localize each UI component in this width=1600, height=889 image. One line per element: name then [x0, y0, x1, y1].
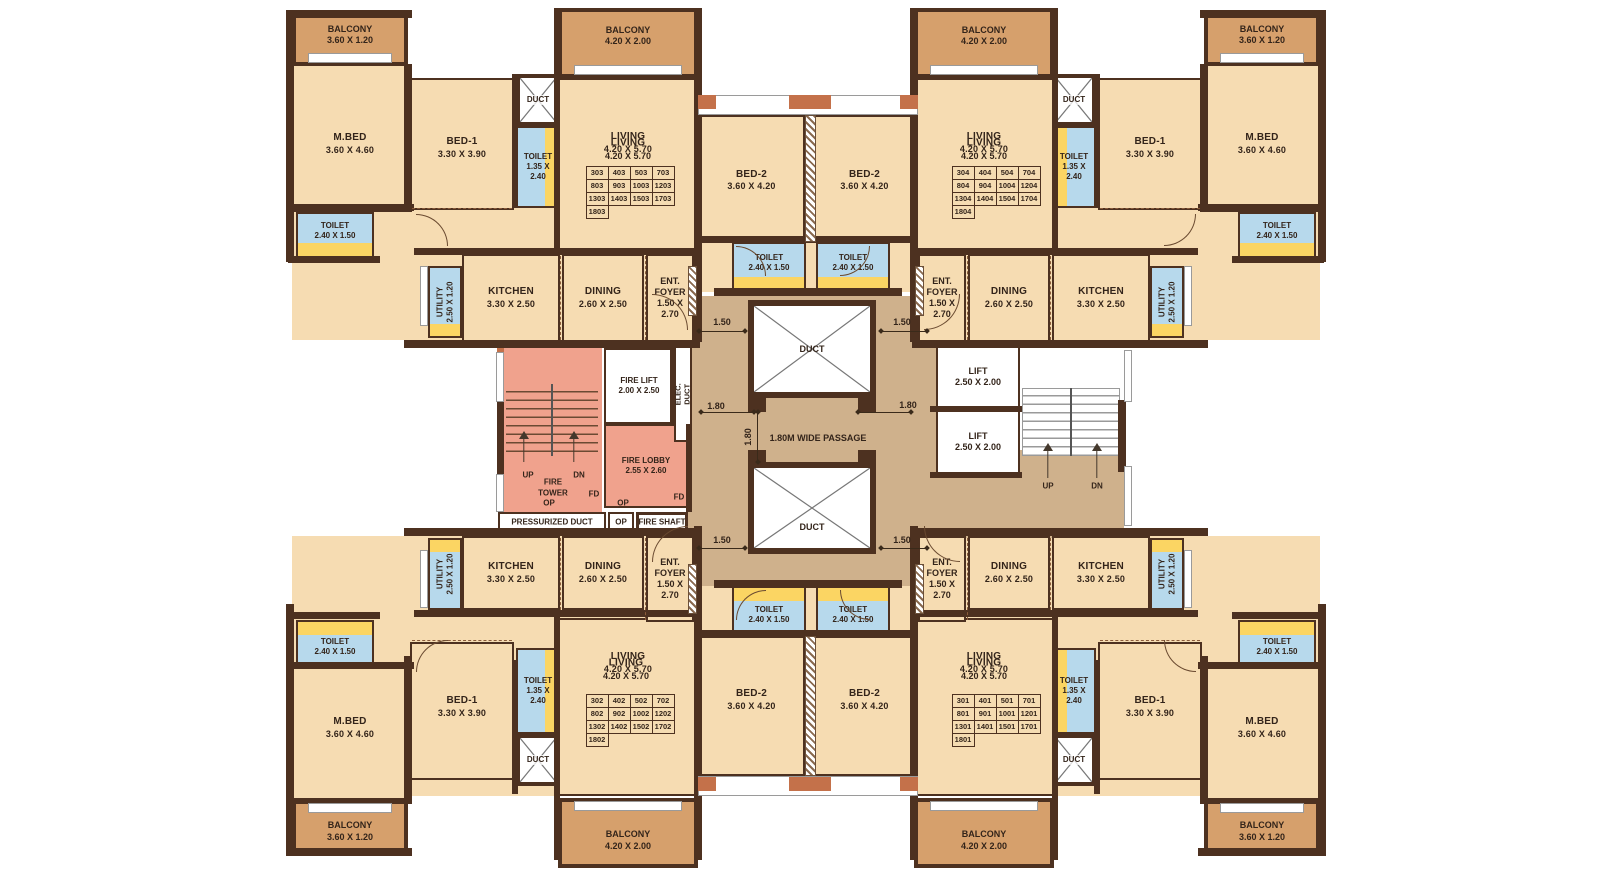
wall-21: [286, 604, 294, 856]
unit-number-cell: 1704: [1018, 192, 1041, 206]
room-toilet-bed1-top-right: TOILET1.35 X2.40: [1052, 126, 1096, 208]
label: KITCHEN: [1078, 561, 1124, 574]
room-kitchen-top-left: KITCHEN3.30 X 2.50: [462, 254, 560, 342]
label: 4.20 X 5.70: [961, 151, 1007, 161]
label: 3.30 X 2.50: [487, 299, 535, 310]
fire-shaft-label: FIRE SHAFT: [638, 518, 685, 527]
label: 2.60 X 2.50: [579, 574, 627, 585]
dash-df-tr: [967, 256, 968, 340]
room-lift-2: LIFT2.50 X 2.00: [936, 410, 1020, 474]
label: 2.50 X 1.20: [1167, 554, 1177, 595]
unit-number-cell: 1703: [652, 192, 675, 206]
label: 3.60 X 4.60: [1238, 729, 1286, 740]
room-bed2-center-top-right: BED-23.60 X 4.20: [811, 115, 918, 242]
wall-1: [286, 10, 294, 262]
unit-number-cell: 901: [974, 707, 997, 721]
duct-small-top-right: DUCT: [1052, 74, 1096, 126]
label: 802: [591, 709, 604, 718]
label: 402: [613, 696, 626, 705]
label: BED-1: [446, 136, 477, 149]
op-label-left: OP: [543, 499, 555, 508]
label: 3.30 X 2.50: [1077, 299, 1125, 310]
unit-number-cell: 801: [952, 707, 975, 721]
unit-number-cell: 304: [952, 166, 975, 180]
wall-31: [1318, 604, 1326, 856]
label: 804: [957, 181, 970, 190]
unit-number-cell: 804: [952, 179, 975, 193]
label: TOILET: [1060, 152, 1088, 162]
room-dining-bottom-right: DINING2.60 X 2.50: [968, 536, 1050, 610]
stair-right-treads: [1022, 388, 1120, 456]
label: 1701: [1021, 722, 1038, 731]
label: 303: [591, 168, 604, 177]
label: BALCONY: [606, 829, 651, 840]
label: BALCONY: [606, 24, 651, 35]
unit-number-cell: 702: [652, 694, 675, 708]
label: 301: [957, 696, 970, 705]
label: BALCONY: [962, 829, 1007, 840]
label: 1501: [999, 722, 1016, 731]
label: 2.40: [1066, 172, 1082, 182]
label: 1304: [955, 194, 972, 203]
label: 4.20 X 2.00: [605, 36, 651, 47]
label: 701: [1023, 696, 1036, 705]
fd-label-right: FD: [674, 493, 685, 502]
unit-number-cell: 1304: [952, 192, 975, 206]
unit-number-cell: 1504: [996, 192, 1019, 206]
unit-number-cell: 1502: [630, 720, 653, 734]
label: 302: [591, 696, 604, 705]
label: M.BED: [1245, 132, 1278, 145]
label: 1001: [999, 709, 1016, 718]
window-frame-2: [1124, 350, 1132, 402]
accent-stub-2: [900, 95, 918, 109]
label: ELEC. DUCT: [674, 383, 693, 405]
hatched-wall-4: [688, 564, 697, 614]
label: BED-2: [736, 688, 767, 701]
label: TOILET: [1263, 221, 1291, 231]
label: DINING: [585, 286, 621, 299]
label: 3.30 X 3.90: [1126, 708, 1174, 719]
label: 1801: [955, 735, 972, 744]
label: 3.60 X 1.20: [1239, 35, 1285, 46]
fd-label-left: FD: [589, 490, 600, 499]
unit-number-cell: 1402: [608, 720, 631, 734]
label: 1403: [611, 194, 628, 203]
op-label-right: OP: [617, 499, 629, 508]
label: BED-1: [1134, 695, 1165, 708]
label: 1802: [589, 735, 606, 744]
wall-54: [858, 450, 876, 466]
label: BALCONY: [962, 24, 1007, 35]
label: 1804: [955, 207, 972, 216]
label: 504: [1001, 168, 1014, 177]
wall-37: [1232, 612, 1324, 619]
window-frame-7: [1184, 550, 1192, 608]
label: KITCHEN: [488, 286, 534, 299]
label: 1404: [977, 194, 994, 203]
unit-number-cell: 504: [996, 166, 1019, 180]
label: 3.30 X 3.90: [438, 149, 486, 160]
unit-number-cell: 1201: [1018, 707, 1041, 721]
label: 2.40 X 1.50: [315, 647, 356, 657]
unit-number-cell: 904: [974, 179, 997, 193]
hatched-wall-5: [915, 564, 924, 614]
unit-number-cell: 1401: [974, 720, 997, 734]
label: 3.60 X 4.60: [326, 145, 374, 156]
unit-number-cell: 1004: [996, 179, 1019, 193]
balcony-mbed-bottom-left: BALCONY3.60 X 1.20: [292, 800, 408, 852]
dim-150-top-right: 1.50: [893, 317, 911, 327]
wall-23: [512, 660, 518, 794]
room-bed2-center-bottom-right: BED-23.60 X 4.20: [811, 636, 918, 776]
label: 801: [957, 709, 970, 718]
label: PRESSURIZED DUCT: [511, 518, 592, 527]
label: BALCONY: [328, 820, 373, 831]
dash-kd-tr: [1050, 256, 1051, 340]
up-arrow-stairs: [1042, 444, 1054, 478]
unit-numbers-bottom-left: 3024025027028029021002120213021402150217…: [586, 694, 674, 746]
living-dims-bl: 4.20 X 5.70: [603, 671, 649, 681]
label: FOYER: [654, 568, 685, 579]
unit-number-cell: 1002: [630, 707, 653, 721]
room-utility-top-left: UTILITY2.50 X 1.20: [428, 266, 462, 338]
room-utility-top-right: UTILITY2.50 X 1.20: [1150, 266, 1184, 338]
label: 2.50 X 1.20: [1167, 282, 1177, 323]
dash-df-bl: [645, 538, 646, 620]
balcony-mbed-top-left: BALCONY3.60 X 1.20: [292, 14, 408, 66]
unit-number-cell: 802: [586, 707, 609, 721]
unit-number-cell: 1804: [952, 205, 975, 219]
room-lift-1: LIFT2.50 X 2.00: [936, 346, 1020, 408]
label: UTILITY: [1157, 559, 1167, 589]
label: KITCHEN: [1078, 286, 1124, 299]
label: 3.60 X 4.20: [840, 181, 888, 192]
label: BED-1: [446, 695, 477, 708]
label: DUCT: [527, 755, 549, 765]
label: 2.40 X 1.50: [315, 231, 356, 241]
label: 4.20 X 2.00: [605, 840, 651, 851]
label: 4.20 X 5.70: [961, 671, 1007, 681]
label: 502: [635, 696, 648, 705]
dash-df-tl: [645, 256, 646, 340]
label: LIVING: [967, 658, 1002, 669]
unit-number-cell: 502: [630, 694, 653, 708]
living-dims-tl: 4.20 X 5.70: [605, 151, 651, 161]
wall-24: [554, 614, 560, 860]
balcony-living-bottom-right: BALCONY4.20 X 2.00: [914, 798, 1054, 868]
label: M.BED: [1245, 716, 1278, 729]
wall-30: [1198, 848, 1324, 856]
room-dining-bottom-left: DINING2.60 X 2.50: [562, 536, 644, 610]
wall-14: [1052, 8, 1058, 254]
unit-numbers-top-right: 3044045047048049041004120413041404150417…: [952, 166, 1040, 218]
accent-stub-3: [698, 777, 716, 791]
wall-39: [916, 610, 1198, 617]
label: 4.20 X 2.00: [961, 840, 1007, 851]
label: DUCT: [1063, 95, 1085, 105]
label: BALCONY: [328, 23, 373, 34]
wall-3: [512, 74, 518, 208]
label: M.BED: [333, 716, 366, 729]
wall-8: [414, 248, 696, 255]
label: 2.50 X 2.00: [955, 377, 1001, 388]
label: 3.30 X 3.90: [1126, 149, 1174, 160]
label: 1003: [633, 181, 650, 190]
living-dims-tr: 4.20 X 5.70: [961, 151, 1007, 161]
label: TOILET: [524, 152, 552, 162]
label: OP: [543, 499, 555, 508]
room-kitchen-bottom-left: KITCHEN3.30 X 2.50: [462, 536, 560, 610]
label: TOILET: [1263, 637, 1291, 647]
label: 1.50: [713, 535, 731, 545]
passage-dim-line: [757, 412, 758, 462]
label: FIRE SHAFT: [638, 518, 685, 527]
label: UTILITY: [1157, 287, 1167, 317]
label: 1.80: [899, 400, 917, 410]
wall-44: [930, 340, 1026, 348]
label: KITCHEN: [488, 561, 534, 574]
label: 2.60 X 2.50: [985, 299, 1033, 310]
wall-28: [404, 528, 700, 536]
up-label-stairs: UP: [1042, 482, 1053, 491]
unit-number-cell: 1501: [996, 720, 1019, 734]
wall-20: [286, 848, 412, 856]
dash-df-br: [967, 538, 968, 620]
label: 1301: [955, 722, 972, 731]
label: 404: [979, 168, 992, 177]
label: 2.00 X 2.50: [619, 386, 660, 396]
wall-46: [930, 472, 1022, 478]
unit-number-cell: 301: [952, 694, 975, 708]
label: 1401: [977, 722, 994, 731]
dimline-180-r: [857, 412, 912, 413]
dim-150-bottom-right: 1.50: [893, 535, 911, 545]
pressurized-duct-label: PRESSURIZED DUCT: [511, 518, 592, 527]
accent-stub-0: [698, 95, 716, 109]
label: 903: [613, 181, 626, 190]
unit-number-cell: 902: [608, 707, 631, 721]
accent-stub-1: [789, 95, 831, 109]
label: ENT.: [660, 276, 680, 287]
unit-number-cell: 401: [974, 694, 997, 708]
label: 1.35 X: [526, 686, 549, 696]
label: 1303: [589, 194, 606, 203]
wall-50: [686, 424, 692, 512]
room-bed2-center-bottom-left: BED-23.60 X 4.20: [698, 636, 805, 776]
label: 2.50 X 1.20: [445, 282, 455, 323]
label: 1004: [999, 181, 1016, 190]
label: 2.40: [1066, 696, 1082, 706]
label: DUCT: [800, 522, 825, 532]
label: DINING: [585, 561, 621, 574]
label: 1703: [655, 194, 672, 203]
label: 3.30 X 3.90: [438, 708, 486, 719]
room-bed2-center-top-left: BED-23.60 X 4.20: [698, 115, 805, 242]
label: 2.50 X 1.20: [445, 554, 455, 595]
duct-small-bottom-right: DUCT: [1052, 734, 1096, 786]
label: 4.20 X 5.70: [603, 671, 649, 681]
label: 1204: [1021, 181, 1038, 190]
dn-label-stairs: DN: [1091, 482, 1103, 491]
room-kitchen-bottom-right: KITCHEN3.30 X 2.50: [1052, 536, 1150, 610]
wall-22: [404, 656, 412, 804]
wall-4: [554, 8, 560, 254]
label: 1302: [589, 722, 606, 731]
dim-180-right: 1.80: [899, 400, 917, 410]
label: TOILET: [321, 221, 349, 231]
window-frame-4: [420, 266, 428, 326]
dash-kd-br: [1050, 538, 1051, 610]
label: ENT.: [932, 276, 952, 287]
label: 1202: [655, 709, 672, 718]
label: 3.60 X 1.20: [1239, 831, 1285, 842]
label: OP: [617, 499, 629, 508]
wall-26: [292, 662, 414, 669]
label: DINING: [991, 286, 1027, 299]
wall-2: [404, 64, 412, 212]
wall-32: [1200, 656, 1208, 804]
wall-49: [670, 348, 675, 424]
wall-47: [1118, 400, 1126, 472]
label: 1203: [655, 181, 672, 190]
wall-12: [1200, 64, 1208, 212]
label: 1002: [633, 709, 650, 718]
wall-27: [288, 612, 380, 619]
label: TOILET: [1060, 676, 1088, 686]
unit-number-cell: 1801: [952, 733, 975, 747]
wall-13: [1094, 74, 1100, 208]
up-label-fire: UP: [522, 471, 533, 480]
wall-16: [1198, 204, 1320, 211]
living-label-br: LIVING: [967, 658, 1002, 669]
wall-7: [288, 256, 380, 263]
balcony-living-bottom-left: BALCONY4.20 X 2.00: [558, 798, 698, 868]
label: 1.35 X: [1062, 686, 1085, 696]
label: DUCT: [1063, 755, 1085, 765]
dimline-150-bl: [698, 548, 746, 549]
room-toilet-mbed-bottom-right: TOILET2.40 X 1.50: [1238, 620, 1316, 666]
label: BALCONY: [1240, 23, 1285, 34]
dimline-150-br: [880, 548, 928, 549]
wall-43: [714, 580, 902, 588]
dash-bed1-tl: [412, 208, 512, 209]
unit-number-cell: 1003: [630, 179, 653, 193]
wall-34: [1052, 614, 1058, 860]
wall-11: [1318, 10, 1326, 262]
label: FOYER: [926, 568, 957, 579]
label: 401: [979, 696, 992, 705]
label: 2.60 X 2.50: [579, 299, 627, 310]
unit-number-cell: 1404: [974, 192, 997, 206]
label: 4.20 X 2.00: [961, 36, 1007, 47]
label: TOWER: [538, 489, 568, 498]
unit-number-cell: 1403: [608, 192, 631, 206]
unit-number-cell: 1702: [652, 720, 675, 734]
label: 702: [657, 696, 670, 705]
dash-kd-tl: [560, 256, 561, 340]
label: 704: [1023, 168, 1036, 177]
unit-number-cell: 803: [586, 179, 609, 193]
wall-36: [1198, 662, 1320, 669]
label: TOILET: [524, 676, 552, 686]
unit-number-cell: 1301: [952, 720, 975, 734]
label: DUCT: [527, 95, 549, 105]
room-dining-top-right: DINING2.60 X 2.50: [968, 254, 1050, 342]
balcony-living-top-left: BALCONY4.20 X 2.00: [558, 8, 698, 78]
dim-150-bottom-left: 1.50: [713, 535, 731, 545]
label: BED-1: [1134, 136, 1165, 149]
label: OP: [615, 518, 627, 527]
label: 1803: [589, 207, 606, 216]
op-box-label: OP: [615, 518, 627, 527]
label: 904: [979, 181, 992, 190]
label: 902: [613, 709, 626, 718]
hatched-wall-3: [915, 266, 924, 316]
label: LIVING: [611, 138, 646, 149]
wall-52: [858, 396, 876, 412]
wall-45: [930, 406, 1022, 412]
label: UP: [522, 471, 533, 480]
label: LIVING: [609, 658, 644, 669]
floor-plan: BALCONY3.60 X 1.20BALCONY4.20 X 2.00BALC…: [0, 0, 1600, 889]
wall-17: [1232, 256, 1324, 263]
dim-150-top-left: 1.50: [713, 317, 731, 327]
unit-number-cell: 704: [1018, 166, 1041, 180]
unit-number-cell: 503: [630, 166, 653, 180]
unit-number-cell: 404: [974, 166, 997, 180]
wall-9: [404, 340, 700, 348]
room-dining-top-left: DINING2.60 X 2.50: [562, 254, 644, 342]
label: 1.80: [707, 401, 725, 411]
label: 2.40 X 1.50: [1257, 231, 1298, 241]
label: 2.40: [530, 696, 546, 706]
label: TOILET: [321, 637, 349, 647]
balcony-mbed-bottom-right: BALCONY3.60 X 1.20: [1204, 800, 1320, 852]
label: 3.60 X 4.20: [840, 701, 888, 712]
dimline-150-tr: [880, 331, 928, 332]
unit-number-cell: 1203: [652, 179, 675, 193]
room-utility-bottom-left: UTILITY2.50 X 1.20: [428, 538, 462, 610]
room-kitchen-top-right: KITCHEN3.30 X 2.50: [1052, 254, 1150, 342]
label: FD: [589, 490, 600, 499]
unit-number-cell: 403: [608, 166, 631, 180]
label: 703: [657, 168, 670, 177]
label: LIFT: [968, 366, 987, 377]
living-label-tl: LIVING: [611, 138, 646, 149]
room-toilet-mbed-bottom-left: TOILET2.40 X 1.50: [296, 620, 374, 666]
unit-number-cell: 1001: [996, 707, 1019, 721]
label: 1402: [611, 722, 628, 731]
label: 3.60 X 1.20: [327, 831, 373, 842]
unit-number-cell: 1701: [1018, 720, 1041, 734]
label: 2.40: [530, 172, 546, 182]
label: 1.80M WIDE PASSAGE: [770, 433, 867, 443]
label: 2.55 X 2.60: [626, 466, 667, 476]
duct-main-bottom: [748, 462, 876, 554]
accent-stub-4: [789, 777, 831, 791]
label: BALCONY: [1240, 820, 1285, 831]
wall-10: [1200, 10, 1326, 18]
label: 1503: [633, 194, 650, 203]
room-mbed-bottom-right: M.BED3.60 X 4.60: [1204, 664, 1320, 800]
label: UTILITY: [435, 287, 445, 317]
unit-number-cell: 302: [586, 694, 609, 708]
label: 4.20 X 5.70: [605, 151, 651, 161]
label: 1.50: [893, 317, 911, 327]
hatched-wall-2: [688, 266, 697, 316]
wall-33: [1094, 660, 1100, 794]
